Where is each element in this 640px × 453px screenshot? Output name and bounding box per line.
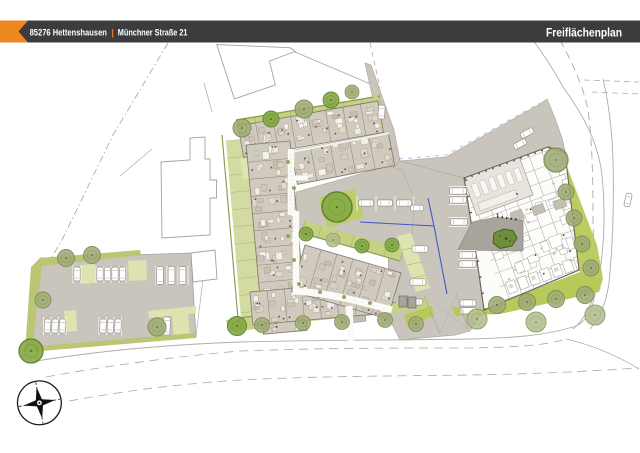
svg-text:85276 Hettenshausen: 85276 Hettenshausen <box>30 28 107 39</box>
svg-text:Münchner Straße 21: Münchner Straße 21 <box>118 28 188 39</box>
svg-text:|: | <box>111 28 114 39</box>
svg-text:Freiflächenplan: Freiflächenplan <box>546 27 622 39</box>
